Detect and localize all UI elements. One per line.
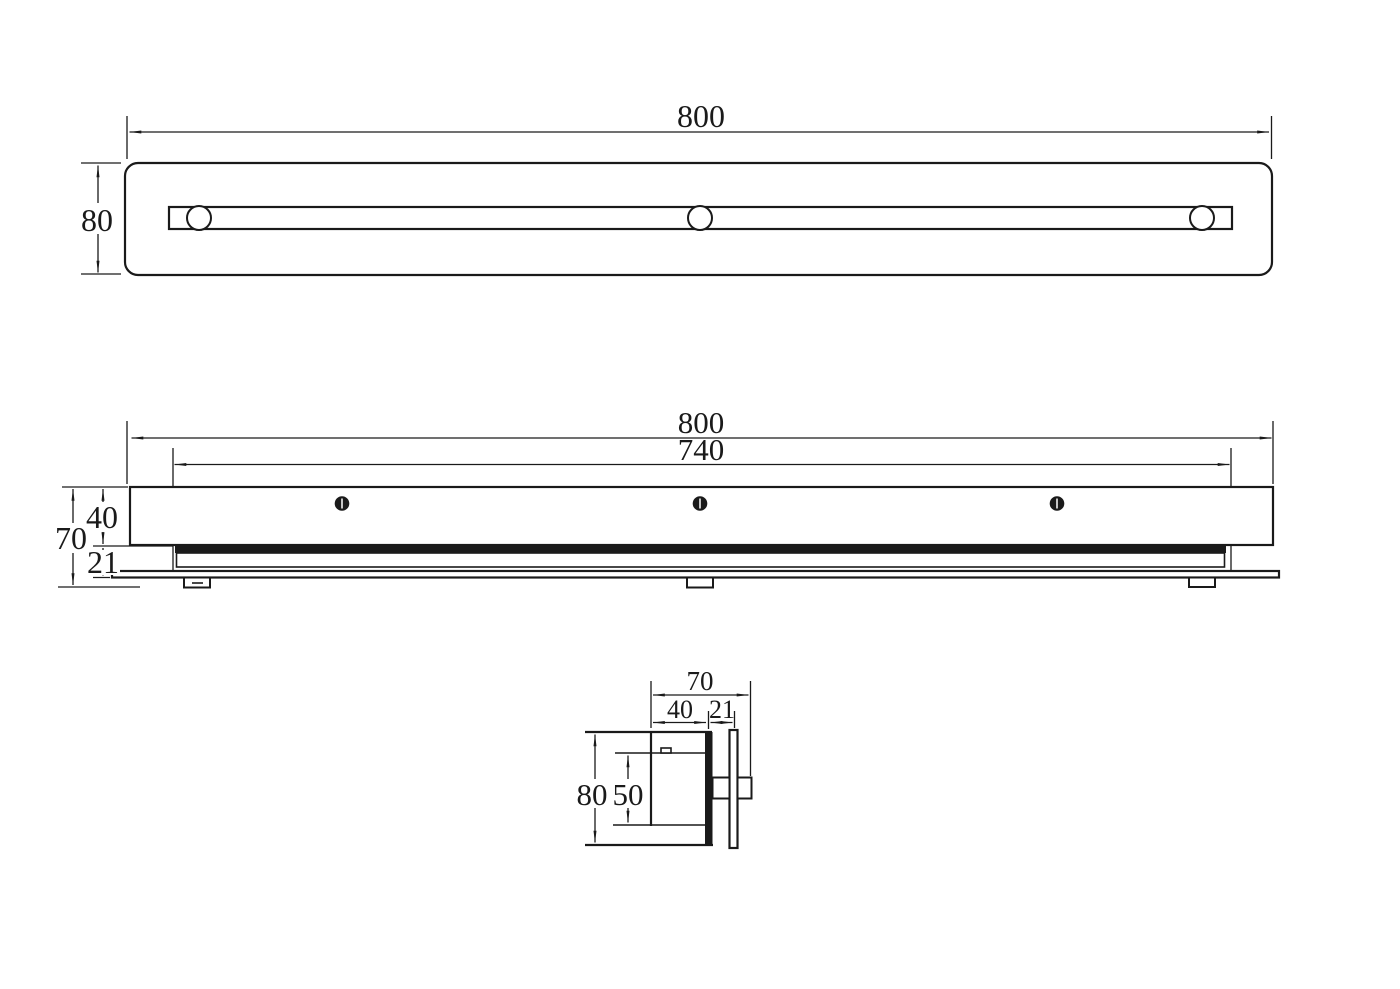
screw-head-center <box>693 496 708 511</box>
drawing-page: 800 80 <box>0 0 1400 989</box>
dim-label-section-flange-width: 21 <box>709 695 735 724</box>
dim-label-front-total-height: 70 <box>55 520 87 556</box>
screw-head-right <box>1050 496 1065 511</box>
section-clip-notch <box>661 748 671 753</box>
dim-label-section-body-width: 40 <box>667 695 693 724</box>
top-view: 800 80 <box>80 98 1272 275</box>
dim-front-inner-width: 740 <box>175 432 1230 467</box>
dim-label-top-height: 80 <box>81 202 113 238</box>
mounting-foot-right <box>1189 578 1215 588</box>
dim-label-section-inner-height: 50 <box>613 777 644 812</box>
front-body-outline <box>130 487 1273 545</box>
dim-top-width: 800 <box>127 98 1272 159</box>
dim-label-section-height: 80 <box>577 777 608 812</box>
dim-section-body-width: 40 21 <box>653 695 735 729</box>
dim-label-top-width: 800 <box>677 98 725 134</box>
dim-label-front-inner-width: 740 <box>678 432 725 467</box>
screw-head-left <box>335 496 350 511</box>
section-right-wall <box>705 732 713 845</box>
channel-body <box>177 553 1225 567</box>
section-outlet-block-inner <box>713 778 730 799</box>
dim-label-section-width: 70 <box>687 666 714 696</box>
mounting-hole-center <box>688 206 712 230</box>
section-outlet-block-outer <box>738 778 752 799</box>
cad-technical-drawing: 800 80 <box>0 0 1400 989</box>
channel-top-bar <box>175 546 1226 553</box>
mounting-hole-right <box>1190 206 1214 230</box>
dim-top-height: 80 <box>80 163 121 274</box>
dim-label-front-body-height: 40 <box>86 499 118 535</box>
front-view: 800 740 70 40 21 <box>55 405 1279 588</box>
dim-section-heights: 80 50 <box>576 735 645 843</box>
section-flange-plate <box>730 730 738 848</box>
mounting-hole-left <box>187 206 211 230</box>
mounting-foot-center <box>687 578 713 588</box>
section-view: 70 40 21 80 50 <box>576 666 752 848</box>
dim-label-front-base-height: 21 <box>87 544 119 580</box>
